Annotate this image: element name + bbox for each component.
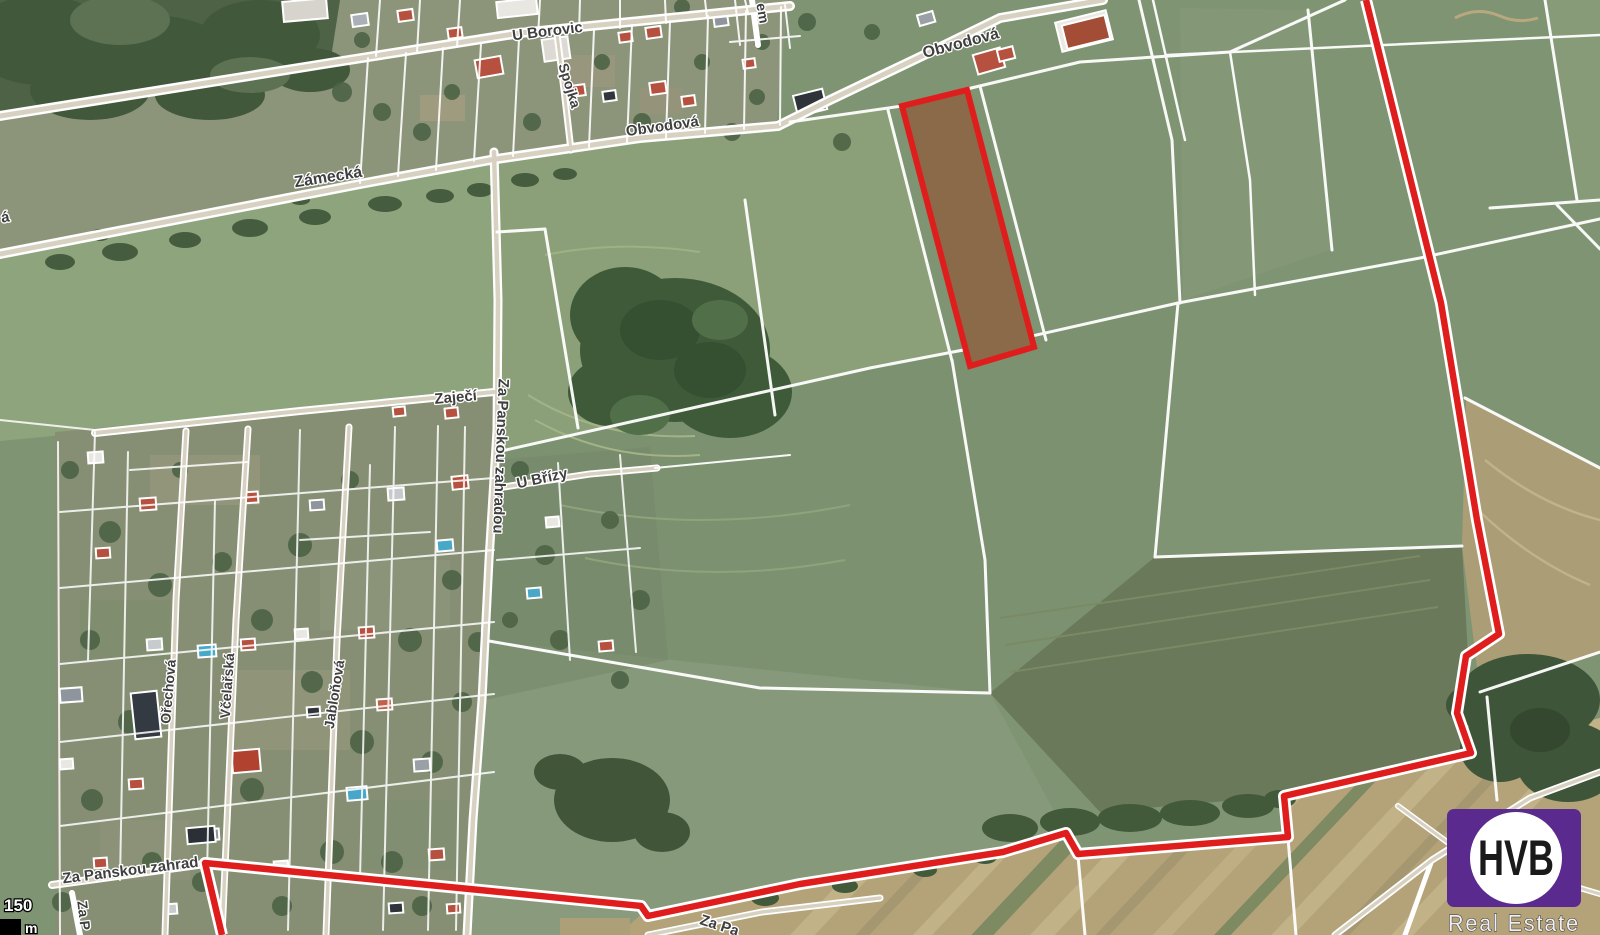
hvb-logo-tagline: Real Estate: [1448, 910, 1580, 935]
map-viewport[interactable]: U Borovic Spojka Obvodová Obvodová Zámec…: [0, 0, 1600, 935]
scale-value: 150: [4, 896, 32, 915]
scale-unit: m: [25, 920, 37, 935]
satellite-map: U Borovic Spojka Obvodová Obvodová Zámec…: [0, 0, 1600, 935]
hvb-logo: HVB Real Estate: [1447, 809, 1581, 935]
scale-bar-block: [0, 919, 21, 935]
hvb-logo-brand: HVB: [1478, 830, 1554, 886]
